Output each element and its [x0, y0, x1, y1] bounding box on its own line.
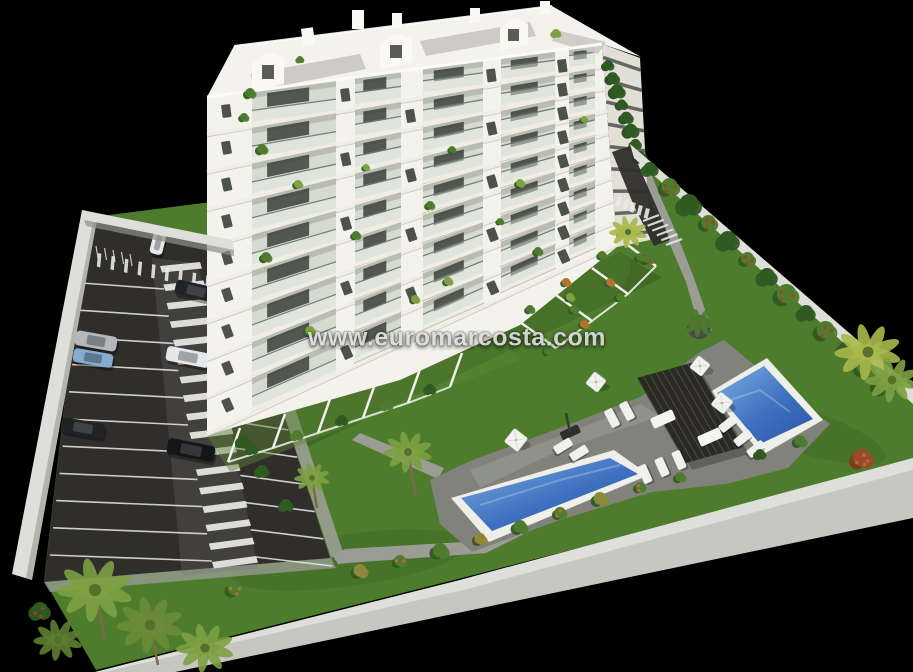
window [221, 104, 232, 118]
render-canvas: www.euromarcosta.com [0, 0, 913, 672]
penthouse-window [390, 45, 402, 58]
window [557, 59, 568, 73]
chimney [540, 1, 550, 14]
watermark-text: www.euromarcosta.com [308, 324, 606, 353]
chimney [470, 8, 480, 23]
chimney [392, 13, 402, 28]
window [340, 88, 351, 102]
window [486, 68, 497, 82]
penthouse-window [262, 65, 274, 79]
chimney [301, 27, 315, 46]
penthouse-window [508, 29, 519, 41]
chimney [352, 10, 364, 29]
